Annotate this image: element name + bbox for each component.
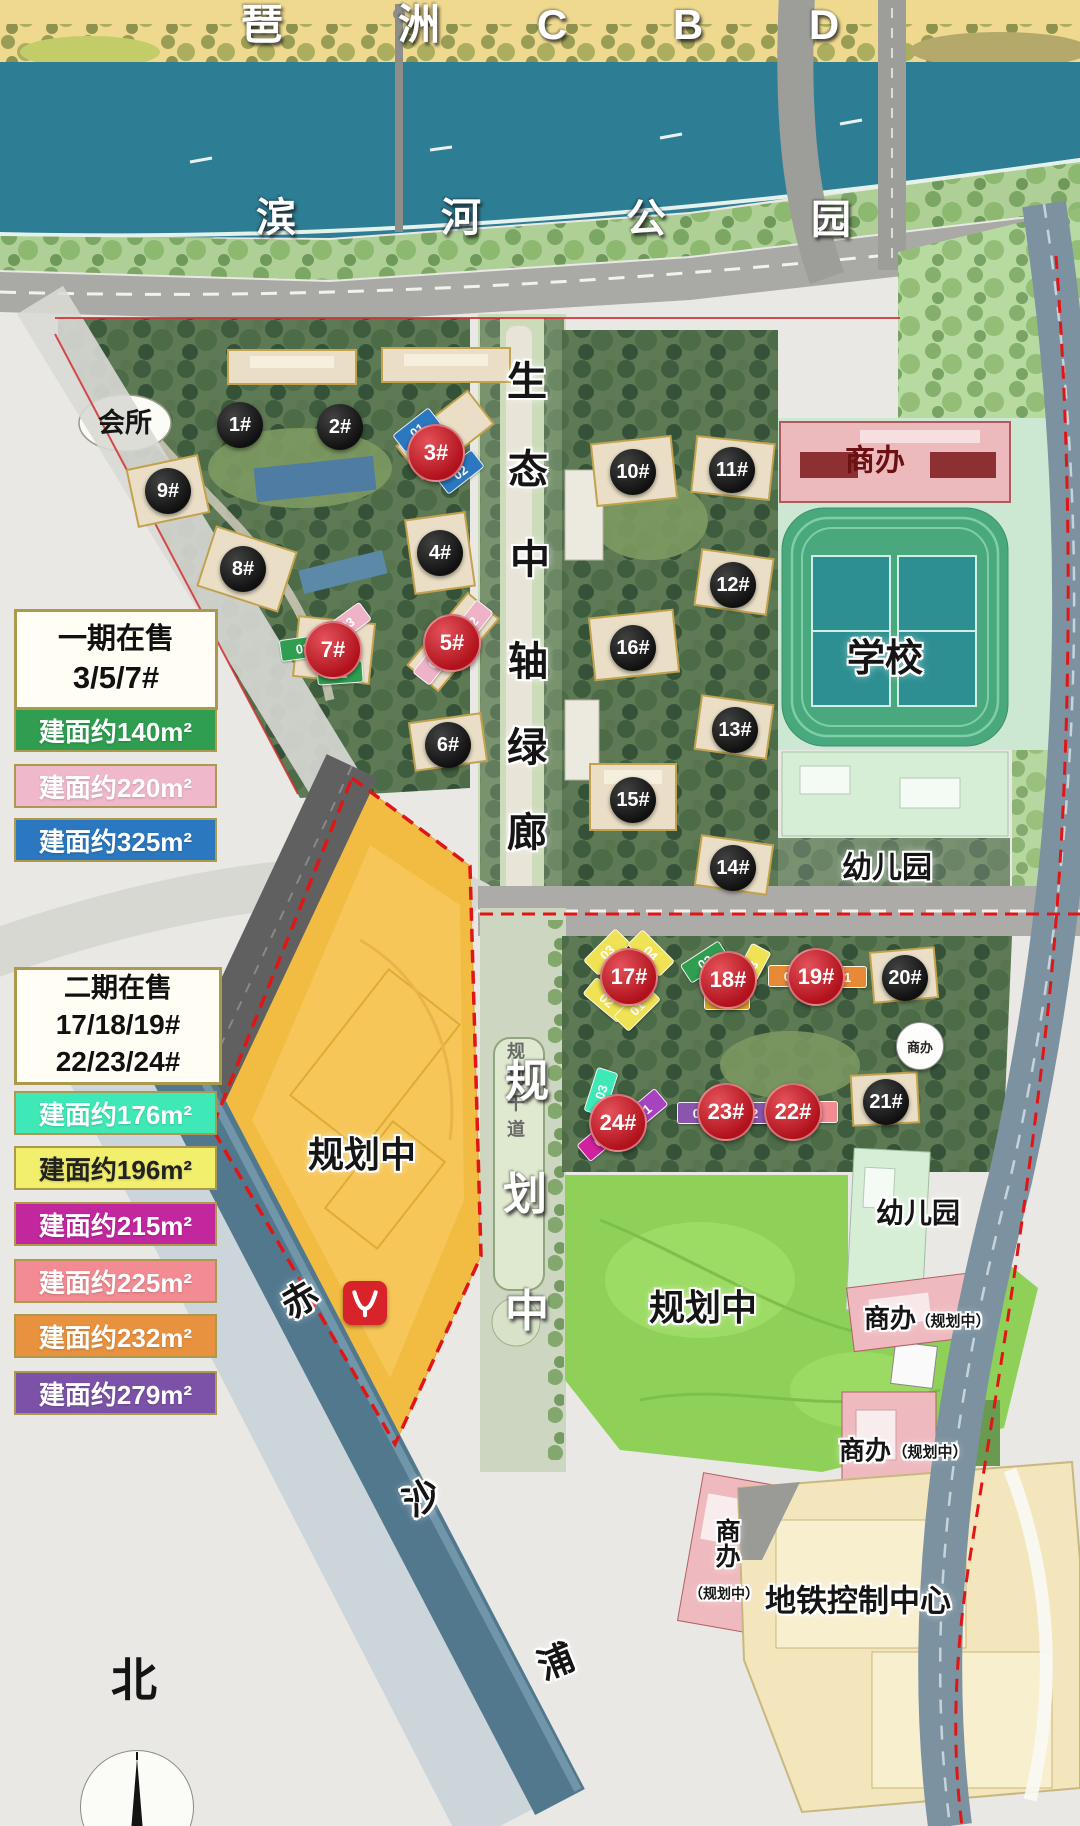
park-label-gong: 公	[626, 198, 666, 240]
phase2-legend-item-176: 建面约176m²	[14, 1091, 217, 1135]
shangban-label-ne: 商办	[864, 1305, 916, 1332]
building-badge-1: 1#	[217, 402, 263, 448]
park-label-bin: 滨	[256, 197, 296, 239]
phase2-legend-item-279: 建面约279m²	[14, 1371, 217, 1415]
building-badge-16: 16#	[610, 625, 656, 671]
phase1-legend-item-140: 建面约140m²	[14, 708, 217, 752]
kindergarten-label-2: 幼儿园	[876, 1198, 960, 1227]
park-label-he: 河	[441, 197, 481, 239]
phase2-panel-buildings-1: 17/18/19#	[17, 1010, 219, 1041]
metro-center-label: 地铁控制中心	[765, 1586, 951, 1619]
road-char-2: 划	[503, 1172, 547, 1218]
phase2-legend-item-232: 建面约232m²	[14, 1314, 217, 1358]
guangzhou-metro-logo-icon	[343, 1281, 387, 1325]
planning-label-west: 规划中	[308, 1136, 416, 1174]
phase1-panel-buildings: 3/5/7#	[17, 661, 215, 695]
building-badge-13: 13#	[712, 707, 758, 753]
road-char-3: 中	[505, 1289, 549, 1335]
building-badge-2: 2#	[317, 404, 363, 450]
building-badge-18: 18#	[699, 951, 757, 1009]
district-label-c: C	[537, 3, 567, 47]
building-badge-17: 17#	[600, 948, 658, 1006]
shangban-label-north: 商办	[845, 445, 905, 477]
creek-char-chi: 赤	[275, 1275, 325, 1326]
marker-layer: 1#2#9#8#4#6#10#11#12#16#13#15#14#20#21#0…	[0, 0, 1080, 1826]
corridor-char-3: 中	[510, 539, 550, 581]
building-badge-14: 14#	[710, 845, 756, 891]
site-plan-page: 1#2#9#8#4#6#10#11#12#16#13#15#14#20#21#0…	[0, 0, 1080, 1826]
metro-goat-horn-glyph	[347, 1285, 383, 1321]
building-badge-6: 6#	[425, 722, 471, 768]
building-badge-15: 15#	[610, 777, 656, 823]
compass-needle	[129, 1758, 145, 1826]
building-badge-商办: 商办	[896, 1022, 944, 1070]
district-label-b: B	[673, 3, 703, 47]
phase1-panel-title: 一期在售	[17, 624, 215, 656]
corridor-char-4: 轴	[508, 641, 548, 683]
phase1-legend-item-220: 建面约220m²	[14, 764, 217, 808]
building-badge-11: 11#	[709, 447, 755, 493]
north-label: 北	[111, 1644, 157, 1710]
building-badge-10: 10#	[610, 449, 656, 495]
shangban-label-sw-sub: （规划中）	[689, 1587, 759, 1602]
corridor-char-1: 生	[507, 361, 547, 403]
building-badge-20: 20#	[882, 955, 928, 1001]
trunk-road-small-4: 道	[507, 1121, 525, 1140]
road-char-1: 规	[505, 1059, 549, 1105]
shangban-label-mid-sub: （规划中）	[892, 1445, 967, 1461]
planning-label-south: 规划中	[649, 1289, 757, 1327]
shangban-label-sw: 商办	[713, 1518, 739, 1568]
building-badge-3: 3#	[407, 424, 465, 482]
district-label-d: D	[809, 3, 839, 47]
building-badge-22: 22#	[764, 1083, 822, 1141]
phase2-legend-item-225: 建面约225m²	[14, 1259, 217, 1303]
creek-char-pu: 浦	[532, 1638, 580, 1687]
phase2-panel: 二期在售 17/18/19# 22/23/24#	[14, 967, 222, 1085]
shangban-label-mid: 商办	[839, 1437, 891, 1464]
building-badge-7: 7#	[304, 621, 362, 679]
phase1-panel: 一期在售 3/5/7#	[14, 609, 218, 710]
clubhouse-label: 会所	[98, 409, 152, 437]
building-badge-5: 5#	[423, 614, 481, 672]
building-badge-4: 4#	[417, 530, 463, 576]
building-badge-9: 9#	[145, 468, 191, 514]
corridor-char-5: 绿	[507, 727, 547, 769]
corridor-char-6: 廊	[507, 812, 547, 854]
district-label-pa: 琶	[241, 3, 283, 47]
building-badge-23: 23#	[697, 1083, 755, 1141]
phase2-legend-item-196: 建面约196m²	[14, 1146, 217, 1190]
building-badge-21: 21#	[863, 1079, 909, 1125]
phase2-legend-item-215: 建面约215m²	[14, 1202, 217, 1246]
district-label-zhou: 洲	[398, 3, 440, 47]
school-label: 学校	[847, 640, 923, 680]
phase1-legend-item-325: 建面约325m²	[14, 818, 217, 862]
creek-char-sha: 沙	[397, 1473, 447, 1524]
building-badge-12: 12#	[710, 562, 756, 608]
shangban-label-ne-sub: （规划中）	[915, 1314, 990, 1330]
building-badge-24: 24#	[589, 1094, 647, 1152]
park-label-yuan: 园	[811, 199, 851, 241]
kindergarten-label-1: 幼儿园	[842, 852, 932, 884]
phase2-panel-buildings-2: 22/23/24#	[17, 1047, 219, 1078]
building-badge-8: 8#	[220, 546, 266, 592]
phase2-panel-title: 二期在售	[17, 974, 219, 1004]
corridor-char-2: 态	[508, 449, 548, 491]
building-badge-19: 19#	[787, 948, 845, 1006]
